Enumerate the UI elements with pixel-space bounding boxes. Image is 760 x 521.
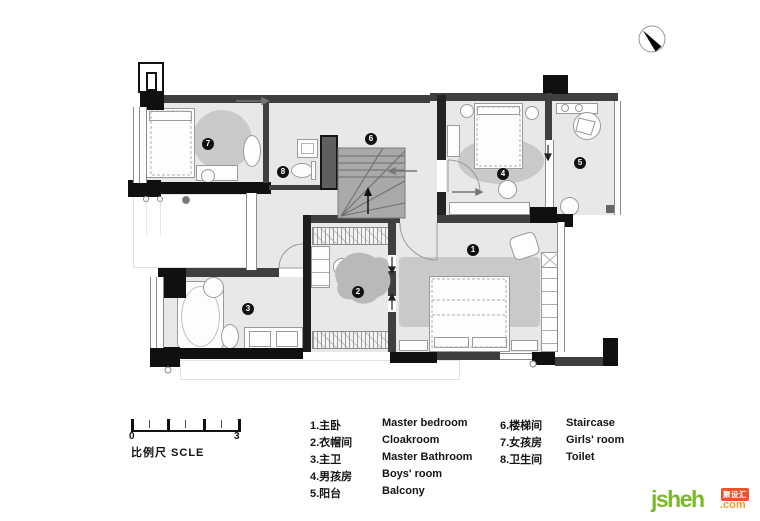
column-mid <box>530 207 557 223</box>
bench-pot-2 <box>575 104 583 112</box>
window-girls-left <box>133 107 147 183</box>
nightstand-boys-right <box>525 106 539 120</box>
dresser-boys <box>449 202 530 215</box>
exterior-line <box>160 195 161 235</box>
legend-item-1-en: Master bedroom <box>382 417 468 429</box>
window-boys-balcony <box>545 140 554 215</box>
room-marker-1: 1 <box>467 244 479 256</box>
door-gap-cloak-2 <box>388 296 396 312</box>
stool-girls <box>201 169 215 183</box>
stool-boys <box>498 180 517 199</box>
window-master-bottom <box>500 353 532 360</box>
nightstand-master <box>511 340 538 351</box>
pillow-master-right <box>472 337 507 348</box>
room-marker-5: 5 <box>574 157 586 169</box>
column-master-bottom <box>532 352 555 365</box>
nightstand-boys-left <box>460 104 474 118</box>
legend-item-5-zh: 5.阳台 <box>310 485 341 501</box>
lounge-chair-girls <box>243 135 261 167</box>
window-bath-left <box>150 277 164 348</box>
scale-tick <box>149 420 150 428</box>
legend-item-5-en: Balcony <box>382 485 425 497</box>
wc-toilet <box>291 163 313 178</box>
pivot-dot <box>165 367 171 373</box>
scale-max: 3 <box>234 431 240 442</box>
room-marker-8: 8 <box>277 166 289 178</box>
stool-cloak <box>333 258 351 276</box>
chimney-flue <box>146 72 157 91</box>
scale-tick <box>131 419 134 430</box>
legend-item-3-en: Master Bathroom <box>382 451 472 463</box>
vanity-sink-left <box>249 331 271 347</box>
window-master-right <box>557 222 565 352</box>
room-marker-4: 4 <box>497 168 509 180</box>
window-balcony-right <box>614 101 621 215</box>
watermark-suffix: .com <box>720 499 746 511</box>
legend-item-4-en: Boys' room <box>382 468 442 480</box>
watermark-logo: jsheh 聚设汇 .com <box>651 486 756 518</box>
wardrobe-cloak-bottom <box>312 331 396 349</box>
room-marker-2: 2 <box>352 286 364 298</box>
room-hallway-lower <box>255 222 303 268</box>
wall-bath-cloak <box>303 215 311 352</box>
desk-boys <box>447 125 460 157</box>
wall-top-right <box>430 93 618 101</box>
scale-tick <box>203 419 206 430</box>
bench-pot-1 <box>561 104 569 112</box>
column-top-right <box>543 75 568 94</box>
scale-bar <box>131 417 241 432</box>
room-marker-7: 7 <box>202 138 214 150</box>
exterior-line <box>146 195 147 235</box>
legend-item-7-zh: 7.女孩房 <box>500 434 542 450</box>
wall-hall-boys-upper <box>437 95 446 160</box>
legend-item-4-zh: 4.男孩房 <box>310 468 352 484</box>
column-bath-bottom-left <box>150 347 180 367</box>
wall-master-bottom-2 <box>437 352 500 360</box>
round-basin-bath <box>203 277 224 298</box>
pillow-boys <box>477 106 520 115</box>
wall-mid-left <box>311 215 400 223</box>
pillow-master-left <box>434 337 469 348</box>
vanity-sink-right <box>276 331 298 347</box>
legend-item-2-en: Cloakroom <box>382 434 439 446</box>
legend-item-1-zh: 1.主卧 <box>310 417 341 433</box>
scale-tick <box>238 419 241 430</box>
wall-mid-right <box>437 215 530 223</box>
wardrobe-cloak-top <box>312 227 396 245</box>
column-bottom-right <box>603 338 618 366</box>
legend-item-2-zh: 2.衣帽间 <box>310 434 352 450</box>
room-marker-6: 6 <box>365 133 377 145</box>
scale-tick <box>221 420 222 428</box>
legend-item-6-zh: 6.楼梯间 <box>500 417 542 433</box>
dresser-master-left <box>399 340 428 351</box>
scale-label: 比例尺 SCLE <box>131 444 204 460</box>
wall-top-left <box>140 95 430 103</box>
window-hall-left <box>246 193 257 270</box>
north-arrow-icon <box>639 26 665 52</box>
room-stair-hall <box>338 101 437 222</box>
floor-plan-page: 1 2 3 4 5 6 7 8 0 3 比例尺 SCLE 1.主卧 Master… <box>0 0 760 521</box>
wall-boys-balcony <box>545 93 552 140</box>
scale-tick <box>185 420 186 428</box>
rug-girls-room <box>192 110 252 170</box>
cabinet-cloak <box>311 246 330 288</box>
wall-girls-toilet <box>263 103 269 183</box>
duct-shaft <box>320 135 338 190</box>
wc-master-bath <box>221 324 239 349</box>
pillow-girls <box>149 111 192 121</box>
wall-master-bottom-1 <box>390 352 437 363</box>
legend-item-3-zh: 3.主卫 <box>310 451 341 467</box>
legend-item-8-en: Toilet <box>566 451 595 463</box>
round-chair-balcony <box>573 112 601 140</box>
legend-item-6-en: Staircase <box>566 417 615 429</box>
exterior-outline-bottom <box>180 360 460 380</box>
wall-cloak-master <box>388 222 396 352</box>
legend-item-8-zh: 8.卫生间 <box>500 451 542 467</box>
watermark-brand: jsheh <box>651 486 704 513</box>
wall-hall-boys-lower <box>437 192 446 215</box>
washbasin-bowl <box>301 143 314 154</box>
door-gap-cloak-1 <box>388 255 396 271</box>
room-marker-3: 3 <box>242 303 254 315</box>
scale-min: 0 <box>129 431 135 442</box>
scale-tick <box>167 419 170 430</box>
legend-item-7-en: Girls' room <box>566 434 624 446</box>
wc-tank-toilet <box>311 161 316 180</box>
